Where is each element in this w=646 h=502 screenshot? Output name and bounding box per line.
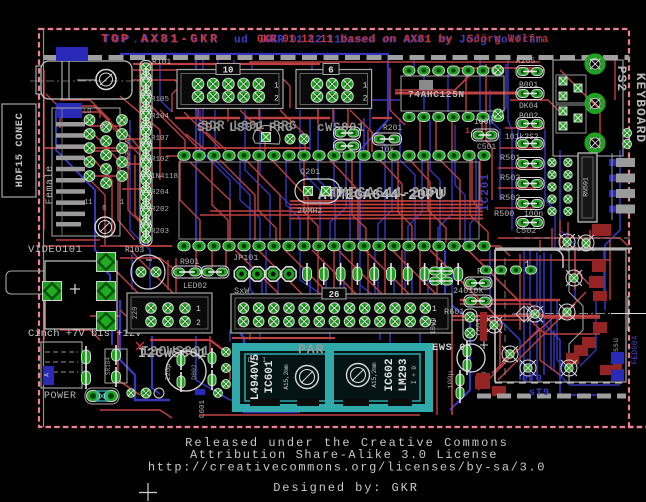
svg-text:A: A bbox=[44, 373, 51, 377]
svg-text:R103: R103 bbox=[125, 246, 144, 255]
svg-text:LM293: LM293 bbox=[398, 358, 410, 391]
svg-text:R104: R104 bbox=[151, 113, 170, 121]
svg-text:100µ: 100µ bbox=[448, 371, 456, 389]
svg-text:JP101: JP101 bbox=[233, 253, 259, 263]
svg-text:74AHC125N: 74AHC125N bbox=[408, 89, 465, 100]
svg-text:IC201: IC201 bbox=[480, 173, 492, 211]
svg-text:R503: R503 bbox=[500, 173, 520, 183]
svg-text:R102: R102 bbox=[151, 156, 169, 164]
svg-text:D802: D802 bbox=[191, 364, 198, 380]
svg-text:R601: R601 bbox=[444, 307, 464, 317]
svg-text:A15,2mm: A15,2mm bbox=[371, 362, 378, 388]
svg-text:1: 1 bbox=[432, 305, 437, 314]
svg-text:R204: R204 bbox=[151, 189, 170, 197]
svg-text:100n: 100n bbox=[524, 210, 543, 219]
svg-text:100n: 100n bbox=[430, 318, 438, 335]
svg-text:C601: C601 bbox=[199, 400, 207, 419]
svg-text:1: 1 bbox=[120, 199, 124, 207]
svg-text:R203: R203 bbox=[151, 228, 170, 236]
svg-text:1: 1 bbox=[465, 127, 470, 136]
svg-text:C502: C502 bbox=[516, 226, 536, 236]
svg-text:A15,2mm: A15,2mm bbox=[283, 364, 290, 390]
svg-text:DK04: DK04 bbox=[519, 102, 538, 111]
svg-text:PAR: PAR bbox=[298, 342, 324, 357]
svg-text:POWER: POWER bbox=[44, 391, 77, 402]
svg-text:D + I: D + I bbox=[248, 357, 266, 364]
svg-text:1: 1 bbox=[363, 82, 368, 91]
svg-text:SJörg Wolfra: SJörg Wolfra bbox=[467, 34, 549, 46]
svg-text:1N4118: 1N4118 bbox=[151, 173, 178, 181]
svg-text:Designed by: GKR: Designed by: GKR bbox=[273, 481, 419, 495]
svg-text:Q201: Q201 bbox=[300, 167, 320, 177]
svg-text:http://creativecommons.org/lic: http://creativecommons.org/licenses/by-s… bbox=[148, 461, 546, 475]
svg-text:11: 11 bbox=[84, 199, 92, 207]
svg-text:6: 6 bbox=[328, 66, 333, 76]
svg-text:10: 10 bbox=[100, 123, 108, 131]
svg-text:sT9: sT9 bbox=[529, 388, 550, 399]
svg-text:PS2: PS2 bbox=[614, 66, 629, 92]
svg-text:R107: R107 bbox=[151, 135, 169, 143]
svg-text:B001: B001 bbox=[519, 81, 538, 90]
svg-text:2: 2 bbox=[196, 319, 201, 328]
svg-text:IC602: IC602 bbox=[384, 358, 396, 391]
svg-text:GKR 01.12.11: GKR 01.12.11 bbox=[257, 34, 333, 46]
svg-text:1: 1 bbox=[196, 305, 201, 314]
svg-text:2: 2 bbox=[363, 95, 368, 104]
svg-text:20MHz: 20MHz bbox=[297, 206, 323, 216]
svg-text:1: 1 bbox=[274, 82, 279, 91]
svg-text:R502: R502 bbox=[500, 193, 520, 203]
svg-text:R202: R202 bbox=[151, 206, 169, 214]
svg-text:KEYBOARD: KEYBOARD bbox=[633, 73, 646, 143]
svg-text:RN501: RN501 bbox=[583, 177, 590, 197]
svg-text:5: 5 bbox=[86, 117, 90, 125]
svg-text:R201: R201 bbox=[383, 124, 402, 133]
svg-text:2: 2 bbox=[274, 95, 279, 104]
svg-text:R101: R101 bbox=[152, 58, 171, 67]
svg-text:B002: B002 bbox=[519, 112, 538, 121]
svg-text:R205: R205 bbox=[516, 57, 535, 66]
svg-text:6: 6 bbox=[102, 205, 106, 213]
svg-text:FED604: FED604 bbox=[631, 335, 640, 364]
svg-text:ud: ud bbox=[234, 35, 248, 47]
svg-text:SR104: SR104 bbox=[105, 357, 112, 375]
svg-text:LED02: LED02 bbox=[183, 282, 207, 291]
svg-text:A102-PAD: A102-PAD bbox=[125, 135, 133, 169]
svg-text:220: 220 bbox=[132, 307, 140, 320]
svg-text:220µ: 220µ bbox=[165, 364, 173, 381]
svg-text:Female: Female bbox=[44, 165, 56, 204]
svg-text:R501: R501 bbox=[500, 153, 520, 163]
svg-text:100n: 100n bbox=[474, 118, 493, 127]
svg-text:SDR L801 PRG: SDR L801 PRG bbox=[201, 119, 297, 133]
svg-text:VIDEO101: VIDEO101 bbox=[28, 244, 82, 256]
svg-text:I + 0: I + 0 bbox=[411, 366, 418, 384]
svg-text:IC601: IC601 bbox=[264, 360, 276, 393]
svg-text:26: 26 bbox=[329, 290, 340, 300]
svg-text:R500: R500 bbox=[494, 209, 514, 219]
svg-text:HDF15 CONEC: HDF15 CONEC bbox=[14, 112, 26, 187]
svg-text:R105: R105 bbox=[151, 96, 170, 104]
svg-text:eT9: eT9 bbox=[522, 374, 543, 385]
svg-text:15: 15 bbox=[118, 117, 126, 125]
svg-text:TOP AX81-GKR: TOP AX81-GKR bbox=[101, 32, 220, 46]
svg-text:10: 10 bbox=[223, 66, 234, 76]
svg-text:based on AX81 by: based on AX81 by bbox=[341, 34, 453, 46]
svg-text:Cinch +7V bis +12V: Cinch +7V bis +12V bbox=[28, 328, 142, 340]
